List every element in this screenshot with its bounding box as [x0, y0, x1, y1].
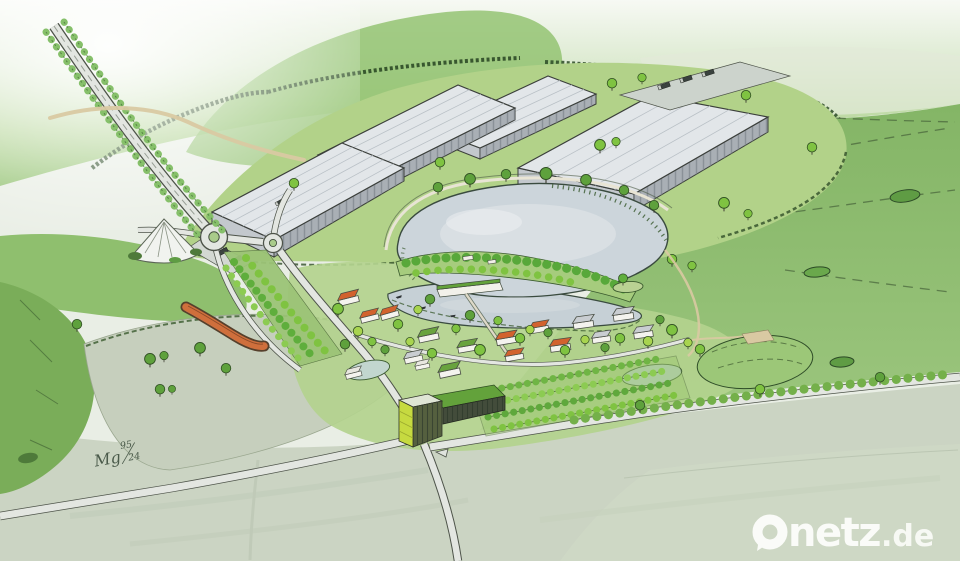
onetz-logo-main: netz: [788, 510, 880, 556]
onetz-logo-suffix: .de: [881, 519, 934, 554]
signature-numerator: 95: [119, 439, 133, 452]
aerial-sketch-image: Mg 95 24 netz .de: [0, 0, 960, 561]
peninsula-shed: [488, 259, 496, 264]
roundabout-small: [264, 234, 283, 253]
